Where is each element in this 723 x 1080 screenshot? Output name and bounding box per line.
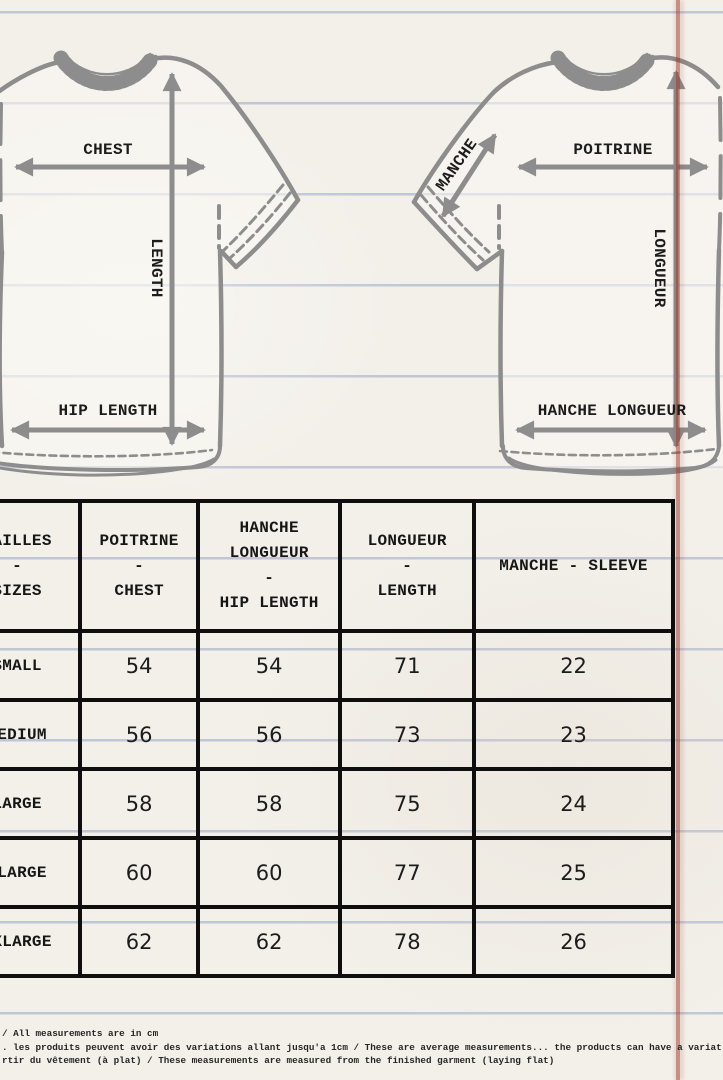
hip-length-label: HIP LENGTH <box>58 402 157 420</box>
size-cell: LARGE <box>0 769 80 838</box>
header-sleeve: MANCHE - SLEEVE <box>474 501 673 631</box>
footnote-line: . les produits peuvent avoir des variati… <box>2 1041 722 1055</box>
size-cell: MEDIUM <box>0 700 80 769</box>
size-cell: XLARGE <box>0 838 80 907</box>
size-cell: SMALL <box>0 631 80 700</box>
size-cell: XXLARGE <box>0 907 80 976</box>
chest-cell: 54 <box>80 631 198 700</box>
hip-cell: 60 <box>198 838 340 907</box>
size-label: MEDIUM <box>0 726 47 744</box>
sleeve-cell: 22 <box>474 631 673 700</box>
table-row: XXLARGE 62 62 78 26 <box>0 907 673 976</box>
chest-cell: 60 <box>80 838 198 907</box>
footnote-line: rtir du vêtement (à plat) / These measur… <box>2 1054 722 1068</box>
chest-label: CHEST <box>83 141 133 159</box>
sleeve-cell: 25 <box>474 838 673 907</box>
table-row: MEDIUM 56 56 73 23 <box>0 700 673 769</box>
table-row: SMALL 54 54 71 22 <box>0 631 673 700</box>
size-label: SMALL <box>0 657 42 675</box>
header-length: LONGUEUR - LENGTH <box>340 501 474 631</box>
sleeve-cell: 24 <box>474 769 673 838</box>
hip-cell: 62 <box>198 907 340 976</box>
size-label: LARGE <box>0 795 42 813</box>
chest-cell: 58 <box>80 769 198 838</box>
footnote-line: / All measurements are in cm <box>2 1027 722 1041</box>
size-label: XLARGE <box>0 864 47 882</box>
length-cell: 71 <box>340 631 474 700</box>
header-sizes: TAILLES - SIZES <box>0 501 80 631</box>
poitrine-label: POITRINE <box>573 141 652 159</box>
length-cell: 77 <box>340 838 474 907</box>
chest-cell: 56 <box>80 700 198 769</box>
table-row: XLARGE 60 60 77 25 <box>0 838 673 907</box>
length-cell: 78 <box>340 907 474 976</box>
footnotes: / All measurements are in cm . les produ… <box>2 1027 722 1068</box>
hanche-longueur-label: HANCHE LONGUEUR <box>538 402 687 420</box>
hip-cell: 58 <box>198 769 340 838</box>
longueur-label: LONGUEUR <box>650 228 668 307</box>
sleeve-cell: 26 <box>474 907 673 976</box>
length-cell: 75 <box>340 769 474 838</box>
chest-cell: 62 <box>80 907 198 976</box>
length-cell: 73 <box>340 700 474 769</box>
header-hip-length: HANCHE LONGUEUR - HIP LENGTH <box>198 501 340 631</box>
sleeve-cell: 23 <box>474 700 673 769</box>
size-guide-page: CHEST LENGTH HIP LENGTH MANCHE POITRINE … <box>0 0 723 1080</box>
table-header-row: TAILLES - SIZES POITRINE - CHEST HANCHE … <box>0 501 673 631</box>
size-table: TAILLES - SIZES POITRINE - CHEST HANCHE … <box>0 499 675 978</box>
size-label: XXLARGE <box>0 933 52 951</box>
table-row: LARGE 58 58 75 24 <box>0 769 673 838</box>
hip-cell: 54 <box>198 631 340 700</box>
header-chest: POITRINE - CHEST <box>80 501 198 631</box>
hip-cell: 56 <box>198 700 340 769</box>
margin-line <box>676 0 680 1080</box>
length-label: LENGTH <box>147 238 165 297</box>
